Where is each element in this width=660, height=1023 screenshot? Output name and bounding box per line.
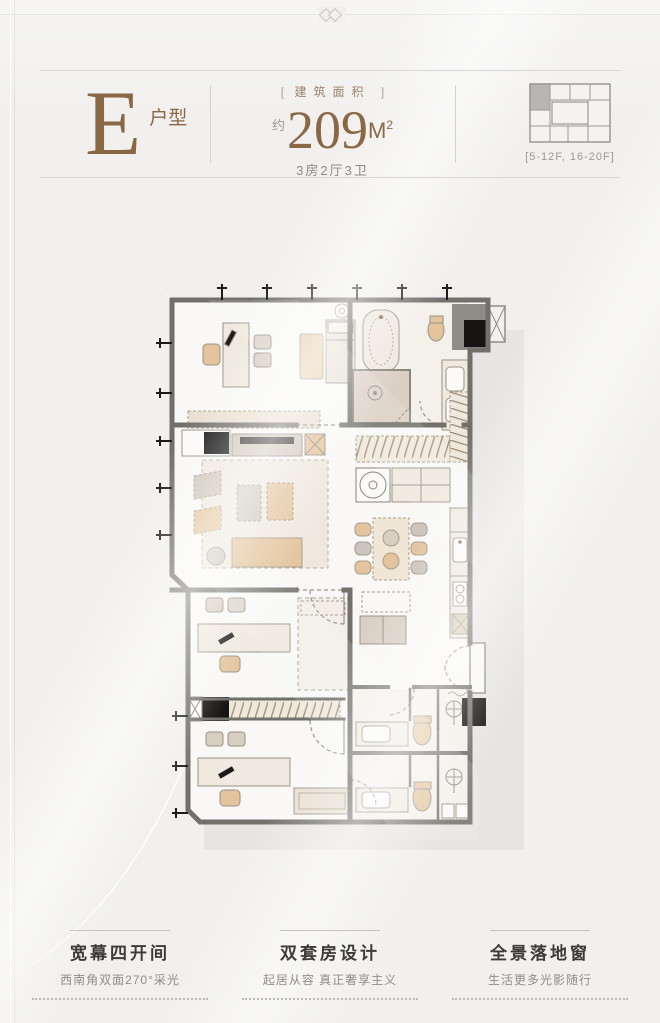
- feature-wide-bays: 宽幕四开间 西南角双面270°采光: [30, 930, 210, 1000]
- bathtub-icon: [363, 310, 399, 372]
- chair-icon: [411, 561, 427, 574]
- office-chair-icon: [203, 344, 220, 365]
- area-block: [ 建筑面积 ] 约209M2 3房2厅3卫: [210, 83, 455, 179]
- entry-bump: [470, 643, 485, 693]
- bench-icon: [294, 788, 350, 814]
- area-unit: M2: [368, 118, 393, 143]
- feature-dotline: [32, 997, 208, 1000]
- closet-strip: [188, 697, 340, 721]
- area-approx: 约: [272, 118, 285, 133]
- diamond-motif-icon: [318, 6, 346, 23]
- chair-icon: [220, 790, 240, 806]
- unit-name: E 户型: [85, 81, 187, 165]
- dining-table-icon: [373, 518, 409, 580]
- feature-title: 宽幕四开间: [30, 939, 210, 964]
- chair-icon: [411, 523, 427, 536]
- sink-icon: [362, 792, 390, 808]
- chair-icon: [355, 561, 371, 574]
- building-keyplan-icon: [529, 83, 611, 147]
- feature-panoramic-windows: 全景落地窗 生活更多光影随行: [450, 930, 630, 1000]
- cabinet: [456, 804, 468, 818]
- rug: [300, 334, 323, 379]
- dining-area: [355, 518, 427, 580]
- ottoman-icon: [254, 353, 271, 367]
- ottoman-icon: [254, 335, 271, 349]
- feature-topline: [490, 930, 590, 931]
- feature-subtitle: 起居从容 真正奢享主义: [240, 971, 420, 988]
- feature-subtitle: 生活更多光影随行: [450, 971, 630, 988]
- sink-icon: [446, 367, 464, 391]
- chair-icon: [411, 542, 427, 555]
- keyplan-block: [5-12F, 16-20F]: [480, 81, 660, 163]
- sink-icon: [362, 726, 390, 742]
- sofa-icon: [232, 538, 302, 567]
- coffee-table-icon: [237, 485, 261, 521]
- side-table-icon: [207, 547, 225, 565]
- ottoman-icon: [228, 732, 245, 746]
- washer-icon: [356, 468, 390, 502]
- feature-topline: [70, 930, 170, 931]
- column-icon: [464, 320, 486, 347]
- floor-range: [5-12F, 16-20F]: [480, 151, 660, 163]
- floorplan-poster: E 户型 [ 建筑面积 ] 约209M2 3房2厅3卫: [0, 0, 660, 1023]
- area-caption: [ 建筑面积 ]: [210, 83, 455, 100]
- area-value: 209: [287, 100, 368, 160]
- feature-title: 全景落地窗: [450, 939, 630, 964]
- feature-dotline: [242, 997, 418, 1000]
- feature-double-suite: 双套房设计 起居从容 真正奢享主义: [240, 930, 420, 1000]
- desk-icon: [198, 758, 290, 786]
- unit-letter: E: [85, 81, 139, 165]
- column-icon: [202, 697, 229, 721]
- floorplan: [144, 280, 524, 850]
- column-icon: [462, 698, 486, 726]
- feature-title: 双套房设计: [240, 939, 420, 964]
- chair-icon: [355, 523, 371, 536]
- header: E 户型 [ 建筑面积 ] 约209M2 3房2厅3卫: [40, 70, 620, 178]
- stove-icon: [453, 582, 467, 606]
- ottoman-icon: [206, 598, 223, 612]
- feature-dotline: [452, 997, 628, 1000]
- ottoman-icon: [206, 732, 223, 746]
- unit-type-label: 户型: [149, 107, 187, 131]
- feature-subtitle: 西南角双面270°采光: [30, 971, 210, 988]
- header-divider-2: [455, 85, 456, 163]
- cabinet: [442, 804, 454, 818]
- desk-icon: [198, 624, 290, 652]
- column-icon: [204, 432, 229, 454]
- chair-icon: [355, 542, 371, 555]
- coffee-table-icon: [267, 483, 293, 520]
- bed-icon: [298, 598, 348, 690]
- tv-icon: [240, 437, 294, 444]
- ottoman-icon: [228, 598, 245, 612]
- kitchen: [450, 508, 470, 638]
- feature-list: 宽幕四开间 西南角双面270°采光 双套房设计 起居从容 真正奢享主义 全景落地…: [0, 930, 660, 1000]
- feature-topline: [280, 930, 380, 931]
- living-room: [182, 411, 328, 568]
- layout-summary: 3房2厅3卫: [210, 160, 455, 179]
- area-value-row: 约209M2: [210, 102, 455, 158]
- chair-icon: [220, 656, 240, 672]
